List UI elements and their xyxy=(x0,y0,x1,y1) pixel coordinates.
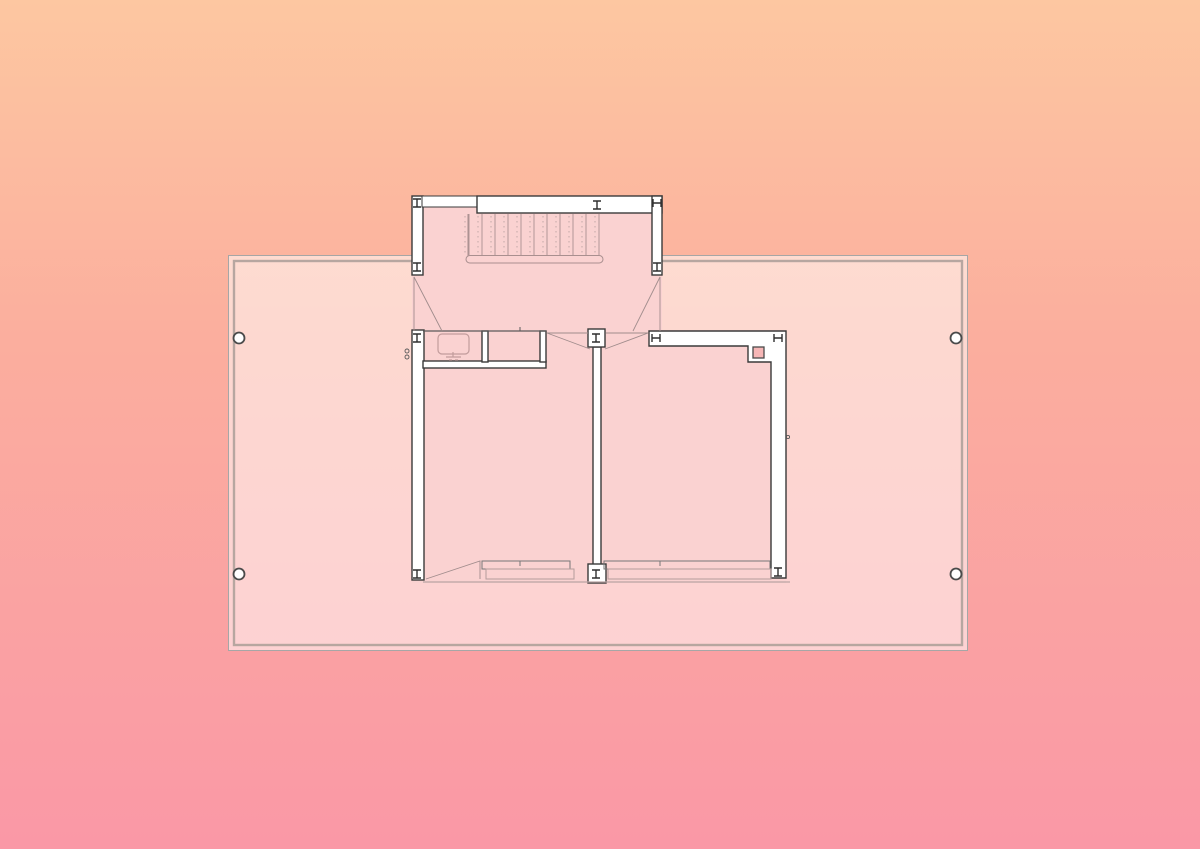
closet-wall-right xyxy=(540,331,546,362)
center-partition-wall xyxy=(593,347,601,566)
closet-wall-left xyxy=(482,331,488,362)
floor-plan-canvas xyxy=(0,0,1200,849)
stair-wall-top xyxy=(477,196,662,213)
deck-post-icon xyxy=(951,569,962,580)
deck-post-icon xyxy=(234,569,245,580)
scene xyxy=(0,0,1200,849)
flue-icon xyxy=(753,347,764,358)
deck-post-icon xyxy=(234,333,245,344)
column-bottom-center xyxy=(588,564,606,583)
deck-post-icon xyxy=(951,333,962,344)
main-wall-left xyxy=(412,330,424,580)
stair-landing-wall xyxy=(422,196,478,207)
